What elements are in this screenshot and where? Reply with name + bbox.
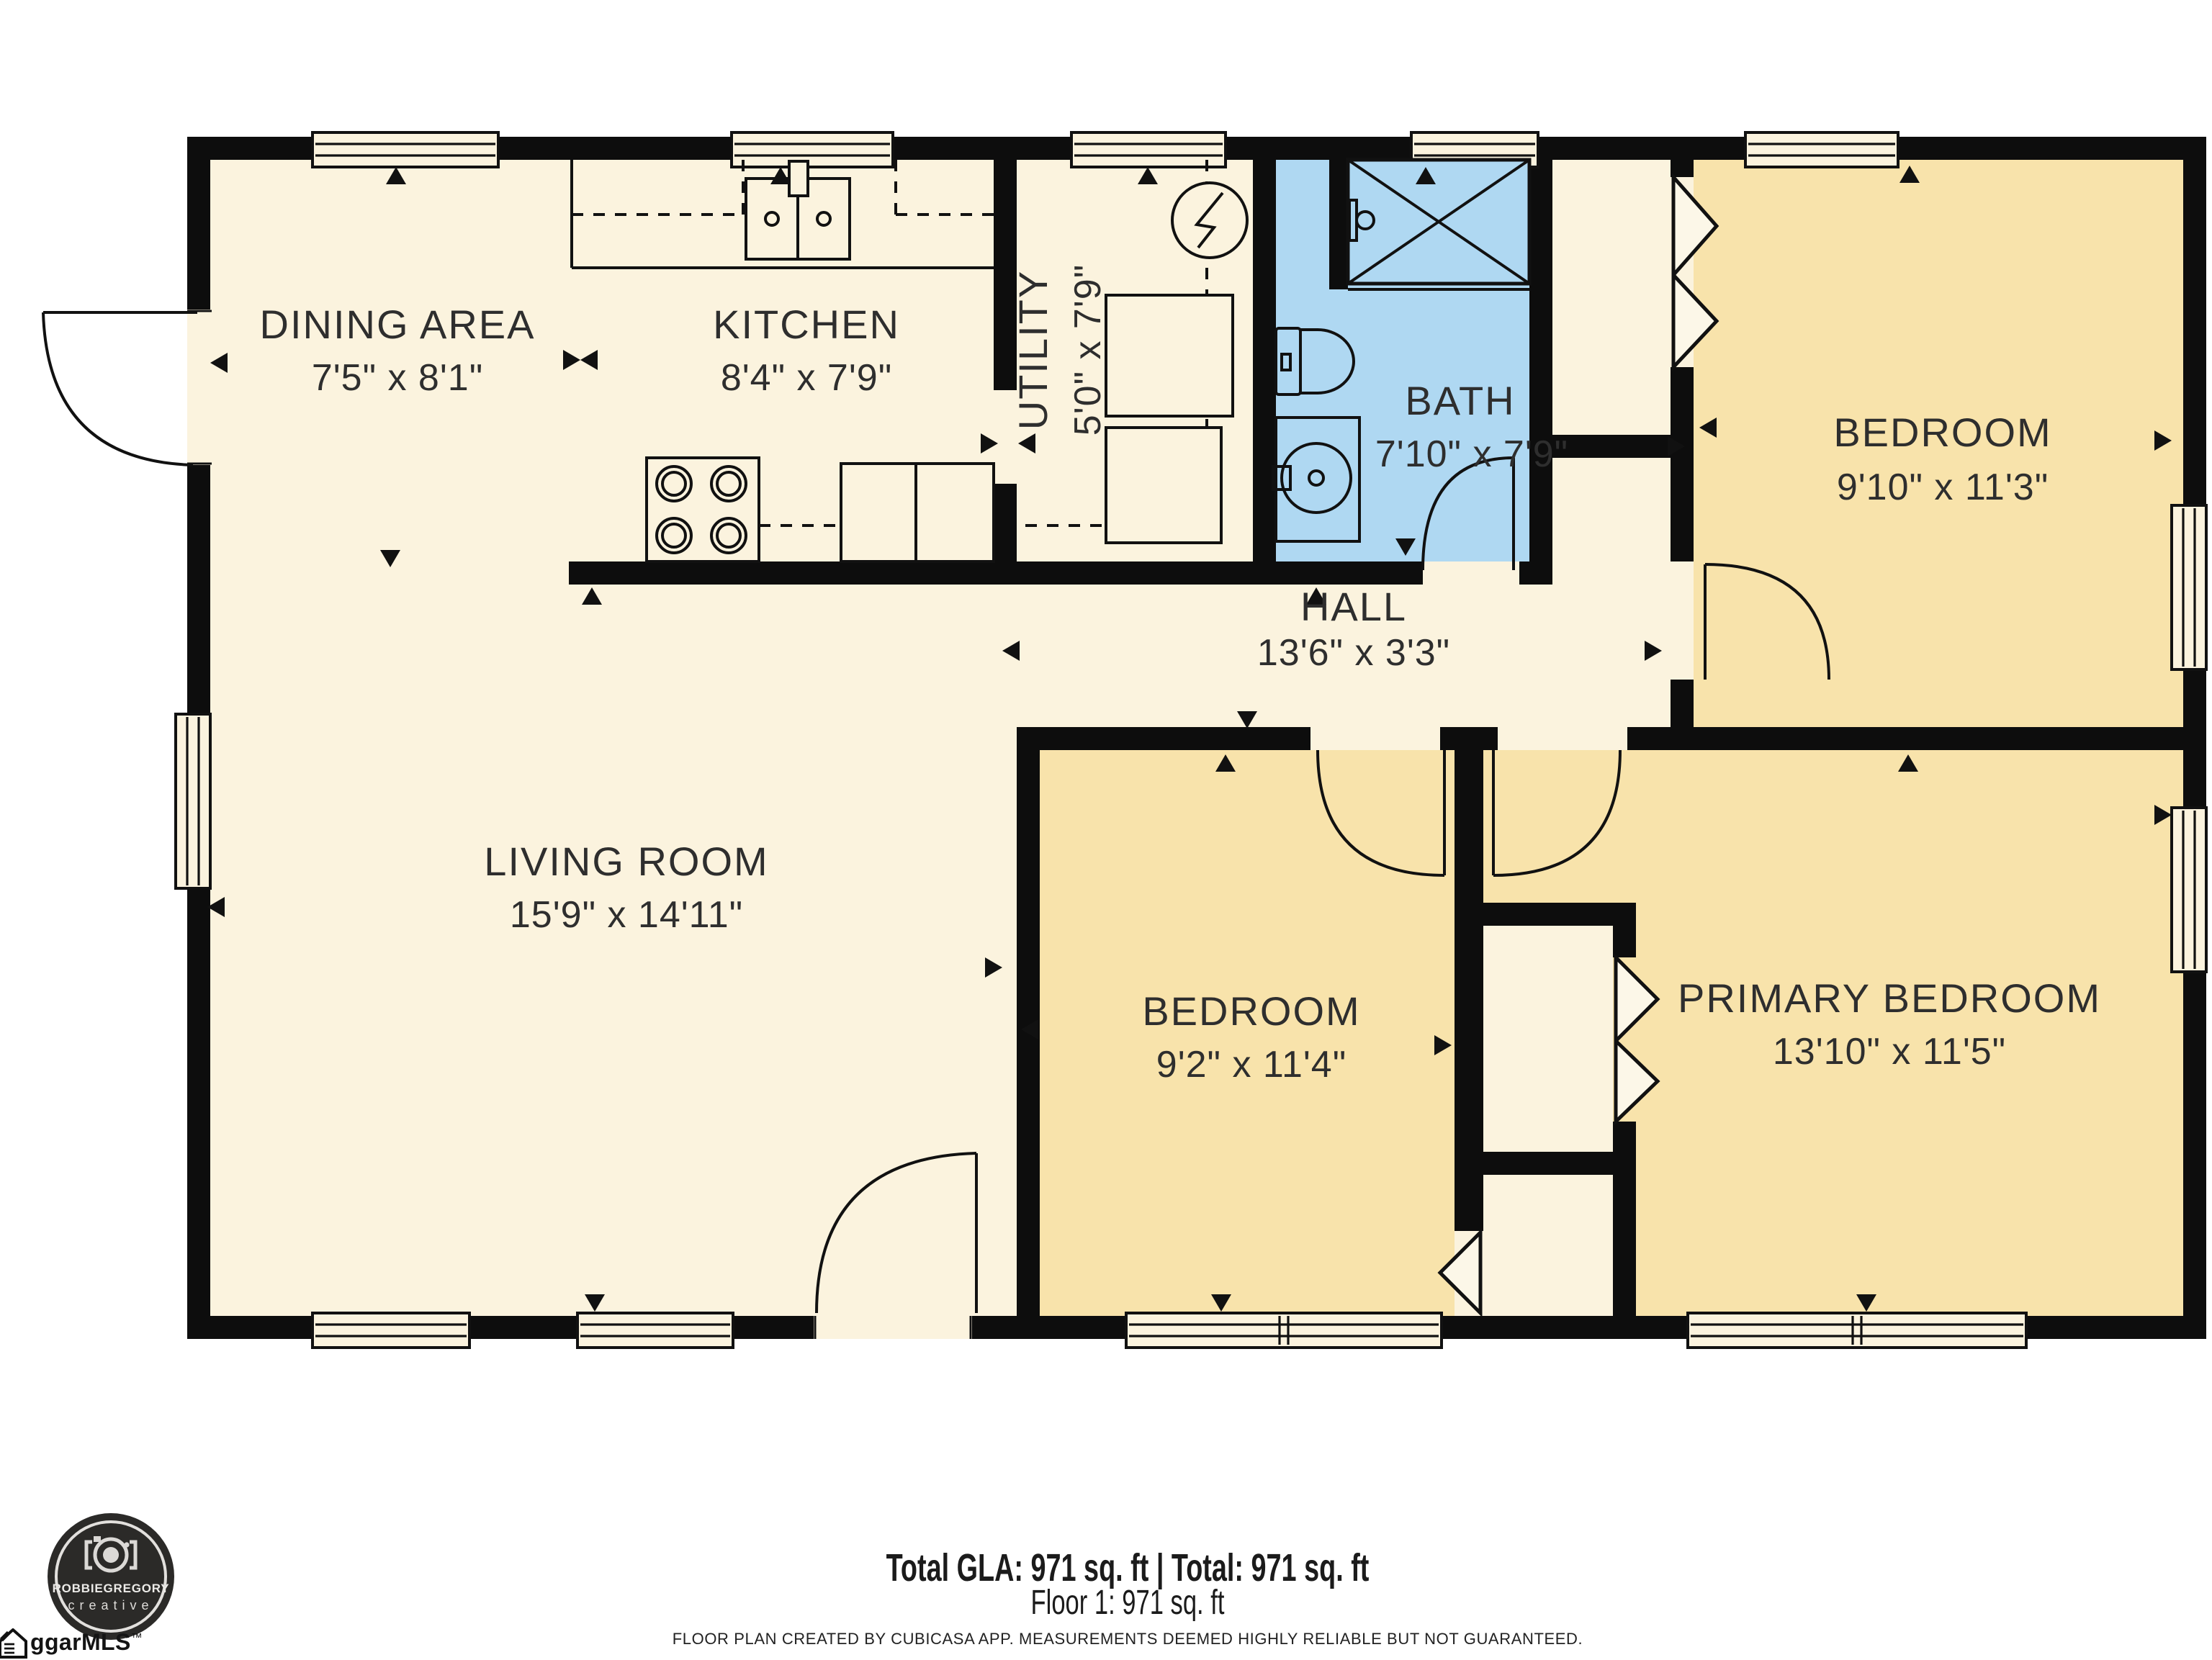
window <box>2172 505 2206 669</box>
floor-plan-page: DINING AREA 7'5" x 8'1" KITCHEN 8'4" x 7… <box>0 0 2212 1659</box>
window <box>1071 132 1226 167</box>
floor-plan: DINING AREA 7'5" x 8'1" KITCHEN 8'4" x 7… <box>0 0 2212 1497</box>
closet-lower <box>1483 1175 1613 1316</box>
label-kitchen: KITCHEN <box>713 302 900 347</box>
floor-area-text: Floor 1: 971 sq. ft <box>1031 1584 1225 1624</box>
window <box>1126 1313 1442 1348</box>
dims-utility: 5'0" x 7'9" <box>1067 264 1109 436</box>
dims-hall: 13'6" x 3'3" <box>1257 632 1450 674</box>
label-hall: HALL <box>1300 584 1407 629</box>
water-heater-icon <box>1172 183 1247 258</box>
closet-upper <box>1483 926 1613 1152</box>
window <box>1745 132 1898 167</box>
house-icon <box>0 1628 30 1660</box>
disclaimer-text: FLOOR PLAN CREATED BY CUBICASA APP. MEAS… <box>673 1631 1583 1648</box>
entry-door <box>43 312 197 465</box>
washer-icon <box>1106 295 1233 416</box>
logo-brand-text: ROBBIEGREGORY <box>48 1581 174 1595</box>
label-bath: BATH <box>1405 378 1515 423</box>
logo-tagline-text: creative <box>48 1598 174 1612</box>
label-bedroom-mid: BEDROOM <box>1142 988 1360 1034</box>
dims-dining: 7'5" x 8'1" <box>312 357 483 399</box>
label-dining: DINING AREA <box>260 302 536 347</box>
window <box>313 1313 469 1348</box>
stove-icon <box>647 458 759 561</box>
window <box>2172 808 2206 972</box>
label-primary: PRIMARY BEDROOM <box>1678 975 2101 1021</box>
label-bedroom-top: BEDROOM <box>1833 410 2051 455</box>
faucet-icon <box>789 161 808 196</box>
window <box>732 132 893 167</box>
dims-kitchen: 8'4" x 7'9" <box>721 357 892 399</box>
window <box>577 1313 733 1348</box>
label-living: LIVING ROOM <box>484 839 768 884</box>
dims-primary: 13'10" x 11'5" <box>1773 1031 2006 1073</box>
mls-watermark: ggarMLS ™ <box>0 1628 143 1660</box>
watermark-tm: ™ <box>131 1630 143 1643</box>
window <box>1688 1313 2026 1348</box>
window <box>313 132 498 167</box>
dims-bedroom-mid: 9'2" x 11'4" <box>1156 1044 1346 1086</box>
window <box>176 714 210 888</box>
robbiegregory-logo: ROBBIEGREGORY creative <box>48 1513 174 1640</box>
dims-bedroom-top: 9'10" x 11'3" <box>1837 466 2049 508</box>
shower-icon <box>1348 160 1529 289</box>
camera-icon <box>84 1533 138 1576</box>
label-utility: UTILITY <box>1010 270 1056 430</box>
watermark-text: ggarMLS <box>30 1631 131 1657</box>
dims-living: 15'9" x 14'11" <box>510 894 743 936</box>
dryer-icon <box>1106 428 1221 543</box>
dims-bath: 7'10" x 7'9" <box>1375 433 1568 475</box>
